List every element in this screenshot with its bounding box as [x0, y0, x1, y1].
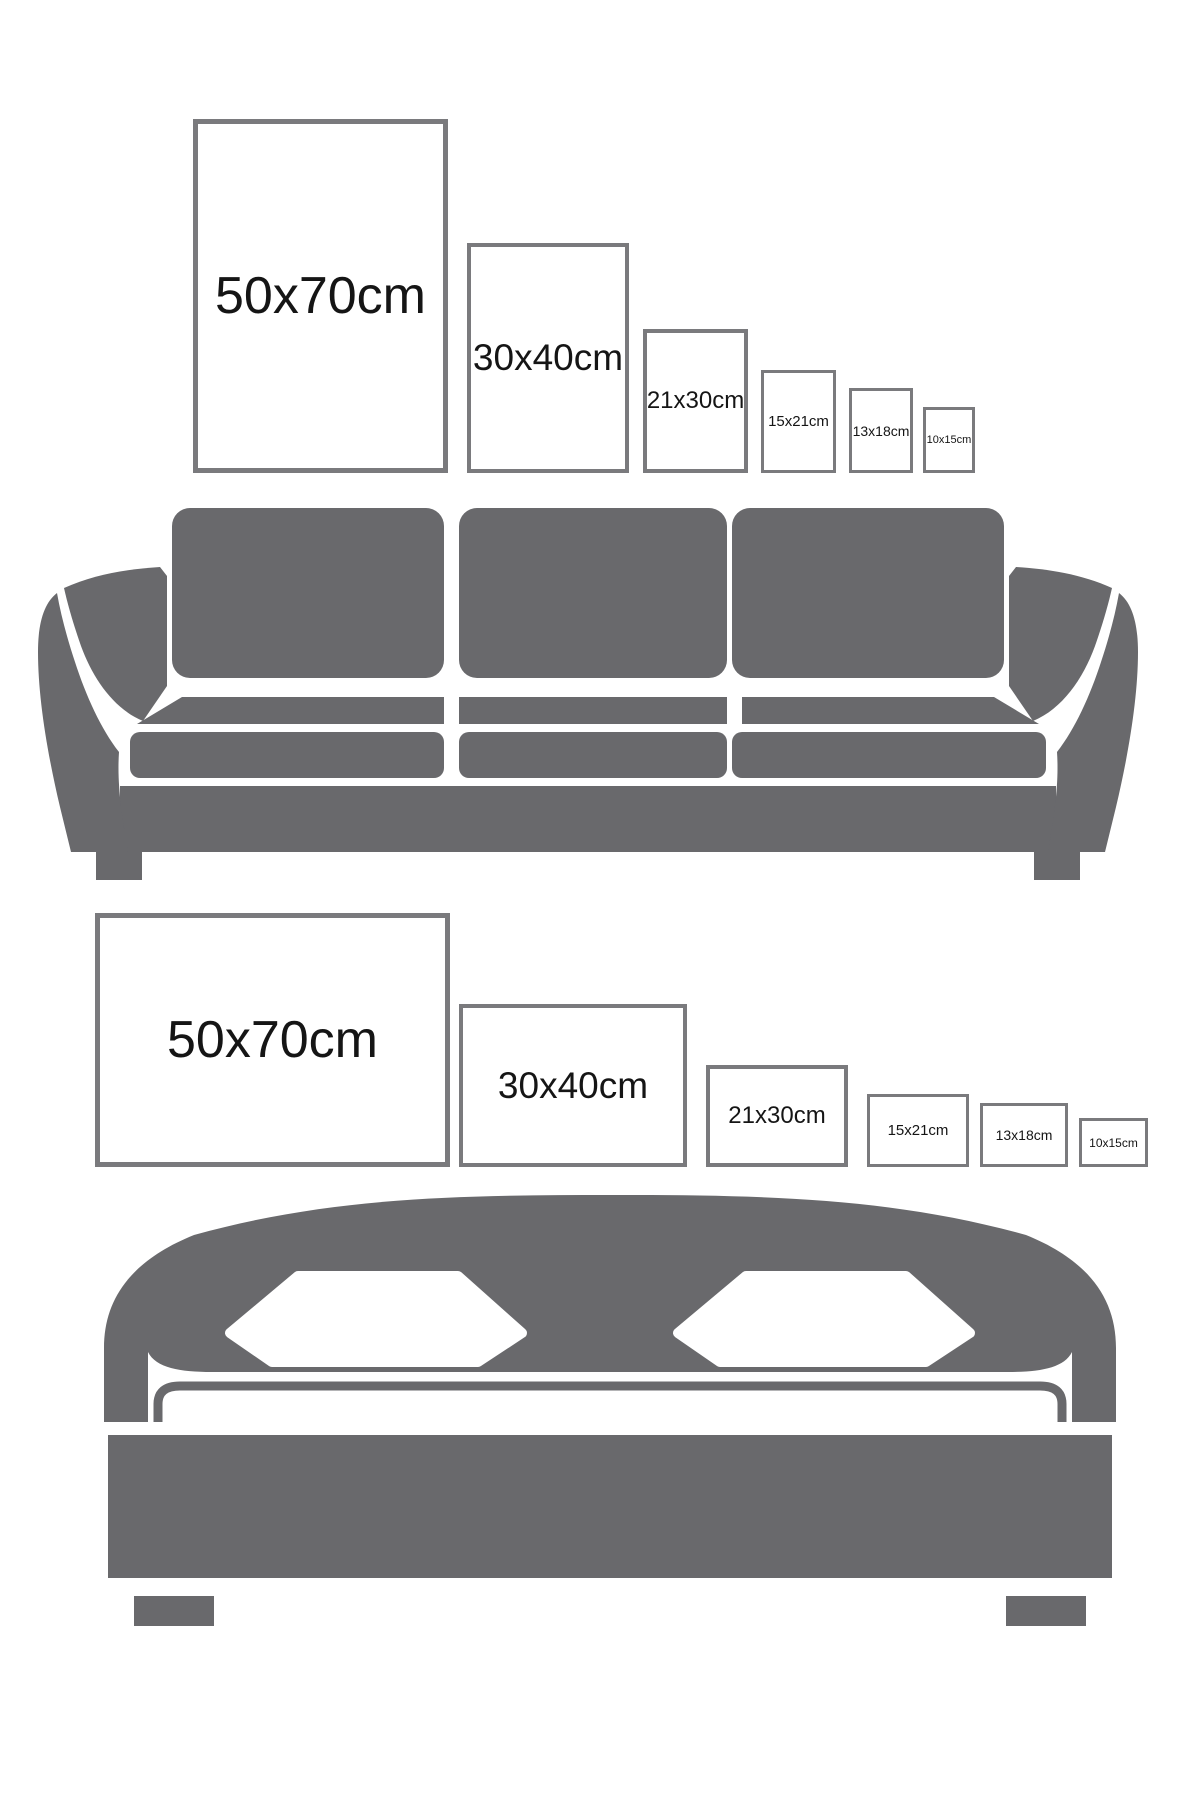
sofa-seat-cushion-3 — [732, 732, 1046, 778]
frame-label: 13x18cm — [853, 423, 910, 439]
frame-landscape-15x21: 15x21cm — [867, 1094, 969, 1167]
bed-base — [108, 1435, 1112, 1578]
poster-size-guide: 50x70cm 30x40cm 21x30cm 15x21cm 13x18cm … — [0, 0, 1200, 1800]
sofa-seat-deck-3 — [742, 697, 1039, 724]
frame-label: 21x30cm — [647, 387, 744, 415]
frame-label: 30x40cm — [473, 337, 623, 379]
frame-label: 10x15cm — [1089, 1136, 1138, 1150]
sofa-base — [120, 786, 1056, 852]
frame-portrait-15x21: 15x21cm — [761, 370, 836, 473]
frame-label: 30x40cm — [498, 1065, 648, 1107]
frame-label: 50x70cm — [215, 266, 426, 326]
bed-mattress-edge — [158, 1386, 1062, 1422]
sofa-foot-right — [1034, 850, 1080, 880]
sofa-back-cushion-3 — [732, 508, 1004, 678]
frame-portrait-30x40: 30x40cm — [467, 243, 629, 473]
sofa-seat-deck-2 — [459, 697, 727, 724]
frame-label: 15x21cm — [768, 413, 829, 430]
sofa-foot-left — [96, 850, 142, 880]
frame-landscape-10x15: 10x15cm — [1079, 1118, 1148, 1167]
frame-landscape-30x40: 30x40cm — [459, 1004, 687, 1167]
frame-landscape-13x18: 13x18cm — [980, 1103, 1068, 1167]
frame-label: 10x15cm — [927, 434, 972, 446]
sofa-silhouette-icon — [0, 460, 1200, 900]
sofa-seat-cushion-1 — [130, 732, 444, 778]
frame-label: 21x30cm — [728, 1102, 825, 1130]
sofa-seat-cushion-2 — [459, 732, 727, 778]
bed-foot-right — [1006, 1596, 1086, 1626]
frame-portrait-50x70: 50x70cm — [193, 119, 448, 473]
sofa-back-cushion-2 — [459, 508, 727, 678]
sofa-seat-deck-1 — [137, 697, 444, 724]
frame-label: 13x18cm — [996, 1127, 1053, 1143]
frame-portrait-21x30: 21x30cm — [643, 329, 748, 473]
bed-silhouette-icon — [0, 1180, 1200, 1660]
bed-foot-left — [134, 1596, 214, 1626]
frame-landscape-50x70: 50x70cm — [95, 913, 450, 1167]
frame-label: 15x21cm — [888, 1122, 949, 1139]
frame-label: 50x70cm — [167, 1010, 378, 1070]
frame-landscape-21x30: 21x30cm — [706, 1065, 848, 1167]
sofa-back-cushion-1 — [172, 508, 444, 678]
